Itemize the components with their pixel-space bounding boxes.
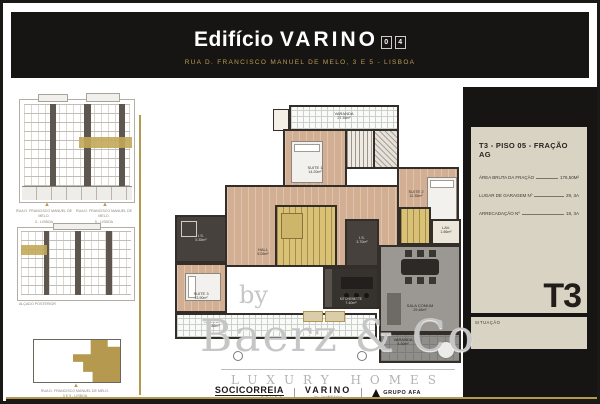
pillow bbox=[294, 144, 320, 152]
stairwell-window-strip bbox=[106, 231, 112, 295]
room-label-hall: HALL5.05m² bbox=[243, 247, 283, 257]
spec-value: 176,50M² bbox=[560, 175, 579, 180]
spec-label: ÁREA BRUTA DA FRAÇÃO bbox=[479, 175, 534, 180]
bed bbox=[291, 141, 323, 183]
roof-structure bbox=[86, 93, 120, 102]
location-marker-icon: ▲ bbox=[102, 202, 108, 208]
highlighted-floor-band bbox=[79, 137, 131, 148]
address-subtitle: RUA D. FRANCISCO MANUEL DE MELO, 3 E 5 -… bbox=[11, 59, 589, 66]
stair-core-right bbox=[399, 207, 431, 245]
brochure-page: EdifícioVARINO04 RUA D. FRANCISCO MANUEL… bbox=[0, 0, 600, 404]
site-plan-drawing bbox=[33, 339, 121, 383]
stairwell-window-strip bbox=[50, 104, 57, 186]
rear-elevation-drawing bbox=[17, 227, 135, 301]
room-label-is-center: I.S.3.70m² bbox=[347, 235, 377, 245]
stair-core-left bbox=[275, 205, 337, 267]
dining-table bbox=[401, 259, 439, 275]
location-marker-icon: ▲ bbox=[44, 202, 50, 208]
stairwell-window-strip bbox=[75, 231, 81, 295]
room-label-varanda-right: VARANDA4.30m² bbox=[383, 337, 423, 347]
watermark-rule bbox=[221, 369, 455, 370]
unit-specs: ÁREA BRUTA DA FRAÇÃO 176,50M² LUGAR DE G… bbox=[479, 175, 579, 216]
unit-info-sidebar: T3 - PISO 05 - FRAÇÃO AG ÁREA BRUTA DA F… bbox=[463, 87, 597, 404]
floor-plan: VARANDA27.35m² SUITE 114.20m² SUITE 212.… bbox=[169, 105, 465, 365]
ventilation-shaft bbox=[373, 129, 399, 169]
room-label-lav: LAV.1.86m² bbox=[431, 225, 461, 235]
spec-value: 29, 3A bbox=[566, 193, 579, 198]
room-label-varanda-bottom: VARANDA10.86m² bbox=[183, 319, 243, 329]
spec-row-garage: LUGAR DE GARAGEM Nº 29, 3A bbox=[479, 193, 579, 198]
room-label-varanda-top: VARANDA27.35m² bbox=[289, 111, 399, 121]
bottom-black-strip bbox=[6, 399, 600, 404]
title-prefix: Edifício bbox=[194, 28, 274, 51]
caption-line: RUA D. FRANCISCO MANUEL DE MELO. bbox=[13, 209, 75, 220]
bedroom-suite1 bbox=[283, 129, 347, 187]
bed bbox=[427, 177, 457, 221]
dimension-label-box bbox=[325, 311, 345, 322]
plant bbox=[437, 341, 455, 359]
unit-type-big: T3 bbox=[543, 279, 581, 313]
rear-elevation-caption: ALÇADO POSTERIOR bbox=[19, 302, 79, 307]
situation-label: SITUAÇÃO bbox=[471, 317, 587, 328]
living-room bbox=[379, 245, 461, 333]
room-label-kitchenette: KITCHENETTE7.40m² bbox=[325, 297, 377, 306]
spec-leader-line bbox=[534, 195, 564, 197]
pillow bbox=[430, 180, 454, 188]
axis-marker bbox=[357, 351, 367, 361]
room-label-is-left: I.S.5.35m² bbox=[177, 233, 225, 243]
highlighted-floor-band bbox=[21, 245, 47, 254]
chair bbox=[417, 277, 424, 284]
gold-footer-line bbox=[6, 397, 600, 399]
spec-label: LUGAR DE GARAGEM Nº bbox=[479, 193, 532, 198]
spec-leader-line bbox=[522, 213, 564, 215]
header-bar: EdifícioVARINO04 RUA D. FRANCISCO MANUEL… bbox=[11, 12, 589, 78]
plan-legend-box bbox=[273, 109, 289, 131]
chair bbox=[405, 250, 412, 257]
roof-structure bbox=[53, 223, 101, 230]
logo-grupo-afa-name: GRUPO AFA bbox=[383, 390, 421, 396]
spec-row-storage: ARRECADAÇÃO Nº 18, 3A bbox=[479, 211, 579, 216]
chair bbox=[429, 277, 436, 284]
bedroom-suite3 bbox=[175, 263, 227, 313]
unit-info-card: T3 - PISO 05 - FRAÇÃO AG ÁREA BRUTA DA F… bbox=[471, 127, 587, 313]
unit-badge-digit-2: 4 bbox=[395, 36, 406, 49]
logo-varino-name: VARINO bbox=[305, 386, 351, 395]
spec-row-area: ÁREA BRUTA DA FRAÇÃO 176,50M² bbox=[479, 175, 579, 180]
chair bbox=[405, 277, 412, 284]
stairwell-window-strip bbox=[44, 231, 50, 295]
dimension-label-box bbox=[303, 311, 323, 322]
afa-triangle-icon bbox=[372, 389, 380, 397]
logo-socicorreia-name: SOCICORREIA bbox=[215, 386, 284, 396]
building-title: EdifícioVARINO04 bbox=[11, 28, 589, 52]
caption-line: RUA D. FRANCISCO MANUEL DE MELO. bbox=[73, 209, 135, 220]
unit-title: T3 - PISO 05 - FRAÇÃO AG bbox=[471, 127, 587, 159]
ground-floor-shops bbox=[22, 186, 131, 200]
building-footprint-shape bbox=[73, 340, 120, 382]
unit-badge-digit-1: 0 bbox=[381, 36, 392, 49]
front-elevation-drawing bbox=[19, 99, 135, 203]
elevator bbox=[281, 213, 303, 239]
situation-panel: SITUAÇÃO bbox=[471, 317, 587, 349]
room-label-suite1: SUITE 114.20m² bbox=[287, 165, 343, 175]
roof-structure bbox=[38, 94, 67, 102]
chair bbox=[429, 250, 436, 257]
axis-marker bbox=[233, 351, 243, 361]
chair bbox=[417, 250, 424, 257]
spec-leader-line bbox=[536, 177, 558, 179]
kitchen-island bbox=[341, 277, 373, 289]
room-label-suite3: SUITE 313.90m² bbox=[177, 291, 225, 301]
spec-value: 18, 3A bbox=[566, 211, 579, 216]
gold-divider-line bbox=[139, 115, 141, 395]
room-label-sala: SALA COMUM29.48m² bbox=[385, 303, 455, 313]
title-main: VARINO bbox=[280, 28, 378, 51]
logo-grupo-afa: GRUPO AFA bbox=[372, 389, 421, 397]
wardrobe bbox=[345, 129, 375, 169]
room-label-suite2: SUITE 212.35m² bbox=[401, 189, 431, 199]
spec-label: ARRECADAÇÃO Nº bbox=[479, 211, 520, 216]
